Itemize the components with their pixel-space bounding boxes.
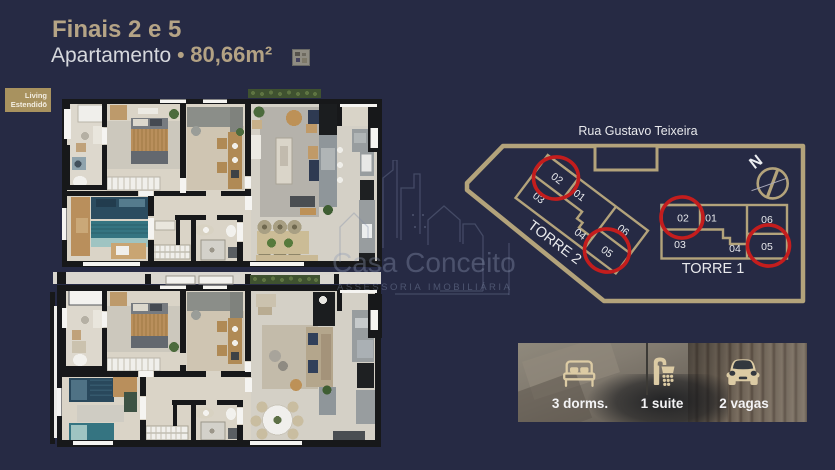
svg-text:1 suite: 1 suite: [641, 396, 684, 411]
svg-text:Casa Conceito: Casa Conceito: [332, 247, 516, 278]
svg-text:2 vagas: 2 vagas: [719, 396, 769, 411]
svg-text:N: N: [746, 152, 766, 173]
svg-text:3 dorms.: 3 dorms.: [552, 396, 608, 411]
svg-text:TORRE 1: TORRE 1: [682, 261, 745, 277]
svg-text:ASSESSORIA IMOBILIÁRIA: ASSESSORIA IMOBILIÁRIA: [337, 282, 512, 293]
